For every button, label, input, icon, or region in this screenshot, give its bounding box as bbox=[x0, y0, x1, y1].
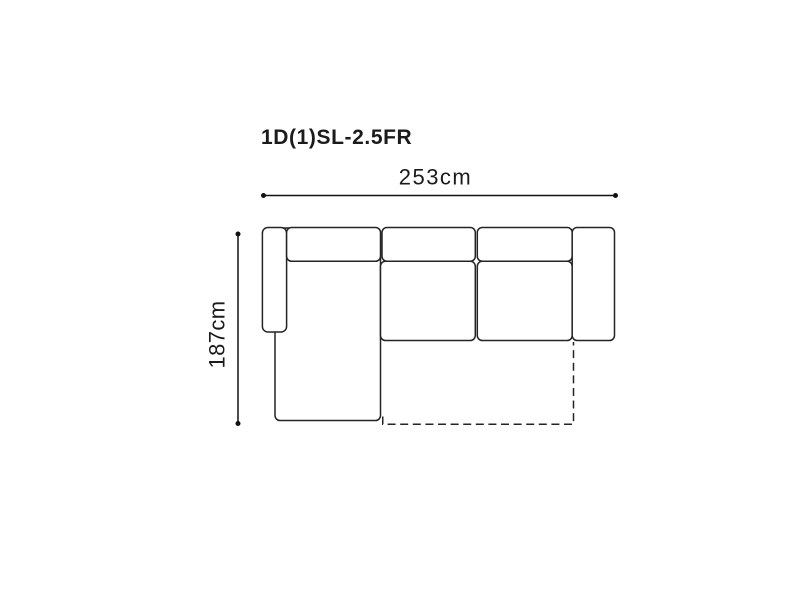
svg-text:187cm: 187cm bbox=[205, 300, 230, 368]
svg-text:1D(1)SL-2.5FR: 1D(1)SL-2.5FR bbox=[261, 126, 412, 149]
svg-text:253cm: 253cm bbox=[399, 165, 473, 190]
